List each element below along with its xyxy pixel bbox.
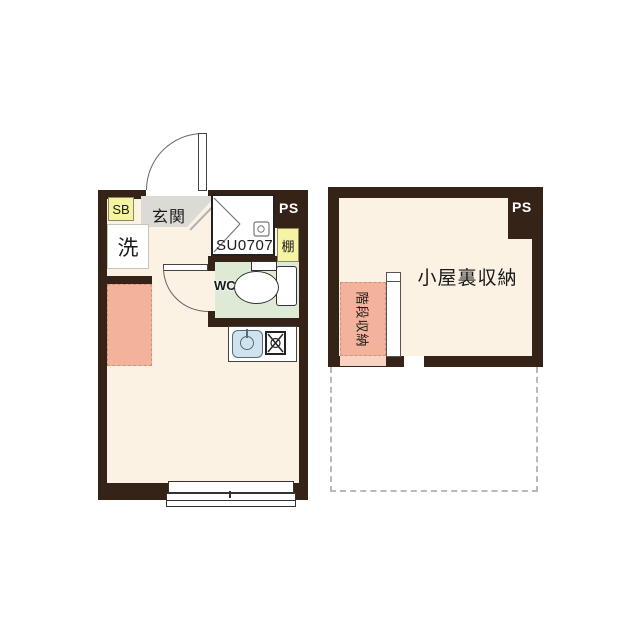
wc-label: WC xyxy=(214,278,236,293)
entrance-door-leaf-icon xyxy=(198,133,207,191)
stair-storage-extension xyxy=(340,356,386,366)
unit-bath-label: SU0707 xyxy=(216,237,273,254)
stair-void-divider xyxy=(386,281,401,282)
window-sash-lower-icon xyxy=(166,493,296,501)
shelf: 棚 xyxy=(277,228,299,262)
platform-wall-stub xyxy=(98,276,152,284)
shoe-box: SB xyxy=(108,197,134,221)
attic-stair-opening xyxy=(404,356,424,367)
bath-fixture-icon xyxy=(254,222,269,236)
window-sash-upper-icon xyxy=(168,481,294,493)
shelf-label: 棚 xyxy=(281,236,294,255)
unit-bath: SU0707 xyxy=(211,194,275,256)
stair-storage: 階段収納 xyxy=(340,282,386,356)
sink-drain-icon xyxy=(240,336,254,350)
window-rail-icon xyxy=(166,501,296,507)
stair-storage-label: 階段収納 xyxy=(354,291,373,347)
pipe-space-attic-label: PS xyxy=(512,199,532,215)
toilet-bowl-icon xyxy=(234,271,279,304)
roof-outline-dashed xyxy=(330,367,538,492)
attic-storage-label: 小屋裏収納 xyxy=(405,263,530,290)
plan-attic: PS 小屋裏収納 階段収納 xyxy=(328,187,543,367)
window-mullion-icon xyxy=(229,491,231,498)
toilet-lid-icon xyxy=(251,261,277,271)
platform-area xyxy=(107,284,152,366)
entrance-door-swing-icon xyxy=(146,133,203,190)
genkan-label: 玄関 xyxy=(152,203,186,227)
stair-void xyxy=(386,272,401,357)
floor-plan-image: 玄関 SB 洗 SU0707 PS 棚 xyxy=(0,0,640,640)
sink-faucet-icon xyxy=(246,329,248,338)
pipe-space-1f-label: PS xyxy=(279,200,299,216)
wc-left-wall-upper xyxy=(208,262,215,271)
shoe-box-label: SB xyxy=(112,202,129,217)
washer-label: 洗 xyxy=(118,232,139,262)
plan-1f: 玄関 SB 洗 SU0707 PS 棚 xyxy=(98,190,308,500)
stove-icon xyxy=(265,331,286,355)
washer-space: 洗 xyxy=(107,224,149,269)
toilet-tank-icon xyxy=(276,266,297,306)
